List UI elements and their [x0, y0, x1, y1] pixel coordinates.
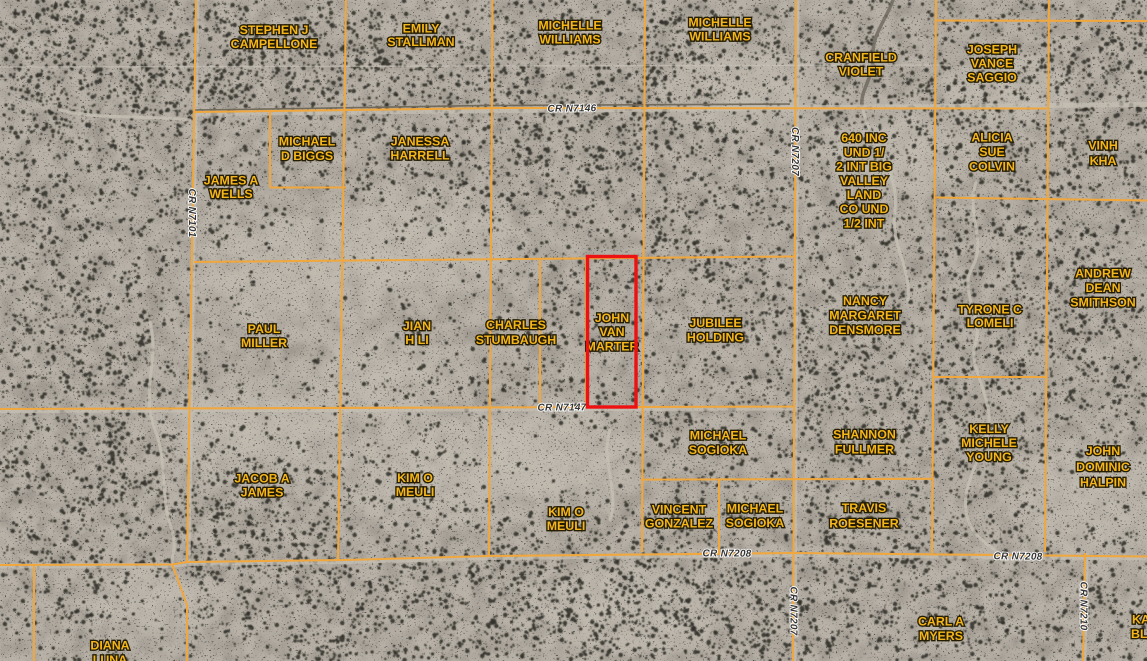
svg-text:CR N7208: CR N7208: [993, 551, 1042, 563]
svg-text:TYRONE CLOMELI: TYRONE CLOMELI: [958, 303, 1022, 331]
svg-text:KIM OMEULI: KIM OMEULI: [396, 471, 435, 499]
svg-text:JANESSAHARRELL: JANESSAHARRELL: [390, 135, 450, 163]
svg-text:DIANALUNA: DIANALUNA: [90, 639, 129, 661]
svg-text:SHANNONFULLMER: SHANNONFULLMER: [833, 428, 896, 457]
svg-text:640 INCUND 1/2 INT BIGVALLEYLA: 640 INCUND 1/2 INT BIGVALLEYLANDCO UND1/…: [836, 131, 892, 230]
svg-text:CR N7208: CR N7208: [702, 548, 751, 559]
svg-text:MICHELLEWILLIAMS: MICHELLEWILLIAMS: [688, 16, 751, 44]
svg-text:JAMES AWELLS: JAMES AWELLS: [204, 174, 259, 202]
svg-text:MICHELLEWILLIAMS: MICHELLEWILLIAMS: [538, 19, 601, 47]
svg-text:MICHAELSOGIOKA: MICHAELSOGIOKA: [689, 429, 748, 457]
svg-text:CARL AMYERS: CARL AMYERS: [918, 615, 964, 644]
svg-text:JIANH LI: JIANH LI: [403, 319, 431, 347]
svg-text:CR N7101: CR N7101: [186, 188, 197, 237]
svg-text:VINCENTGONZALEZ: VINCENTGONZALEZ: [645, 503, 714, 531]
svg-text:CR N7207: CR N7207: [788, 586, 799, 635]
svg-text:VINHKHA: VINHKHA: [1088, 139, 1118, 169]
svg-text:JACOB AJAMES: JACOB AJAMES: [234, 472, 289, 500]
svg-text:PAULMILLER: PAULMILLER: [241, 322, 287, 350]
svg-text:KAR: KAR: [1132, 613, 1147, 627]
svg-text:KELLYMICHELEYOUNG: KELLYMICHELEYOUNG: [961, 422, 1017, 464]
svg-text:MICHAELD BIGGS: MICHAELD BIGGS: [279, 135, 336, 163]
svg-text:STEPHEN JCAMPELLONE: STEPHEN JCAMPELLONE: [231, 23, 318, 51]
svg-text:BLA: BLA: [1131, 627, 1147, 641]
svg-text:JUBILEEHOLDING: JUBILEEHOLDING: [687, 316, 744, 344]
svg-text:CHARLESSTUMBAUGH: CHARLESSTUMBAUGH: [476, 318, 557, 347]
svg-text:JOSEPHVANCESAGGIO: JOSEPHVANCESAGGIO: [967, 43, 1017, 85]
svg-text:MICHAELSOGIOKA: MICHAELSOGIOKA: [726, 502, 785, 531]
svg-text:KIM OMEULI: KIM OMEULI: [547, 505, 586, 533]
svg-text:CR N7146: CR N7146: [547, 103, 596, 115]
svg-text:CR N7210: CR N7210: [1078, 581, 1089, 630]
svg-text:CR N7147: CR N7147: [537, 402, 586, 413]
svg-text:CR N7207: CR N7207: [789, 127, 800, 176]
